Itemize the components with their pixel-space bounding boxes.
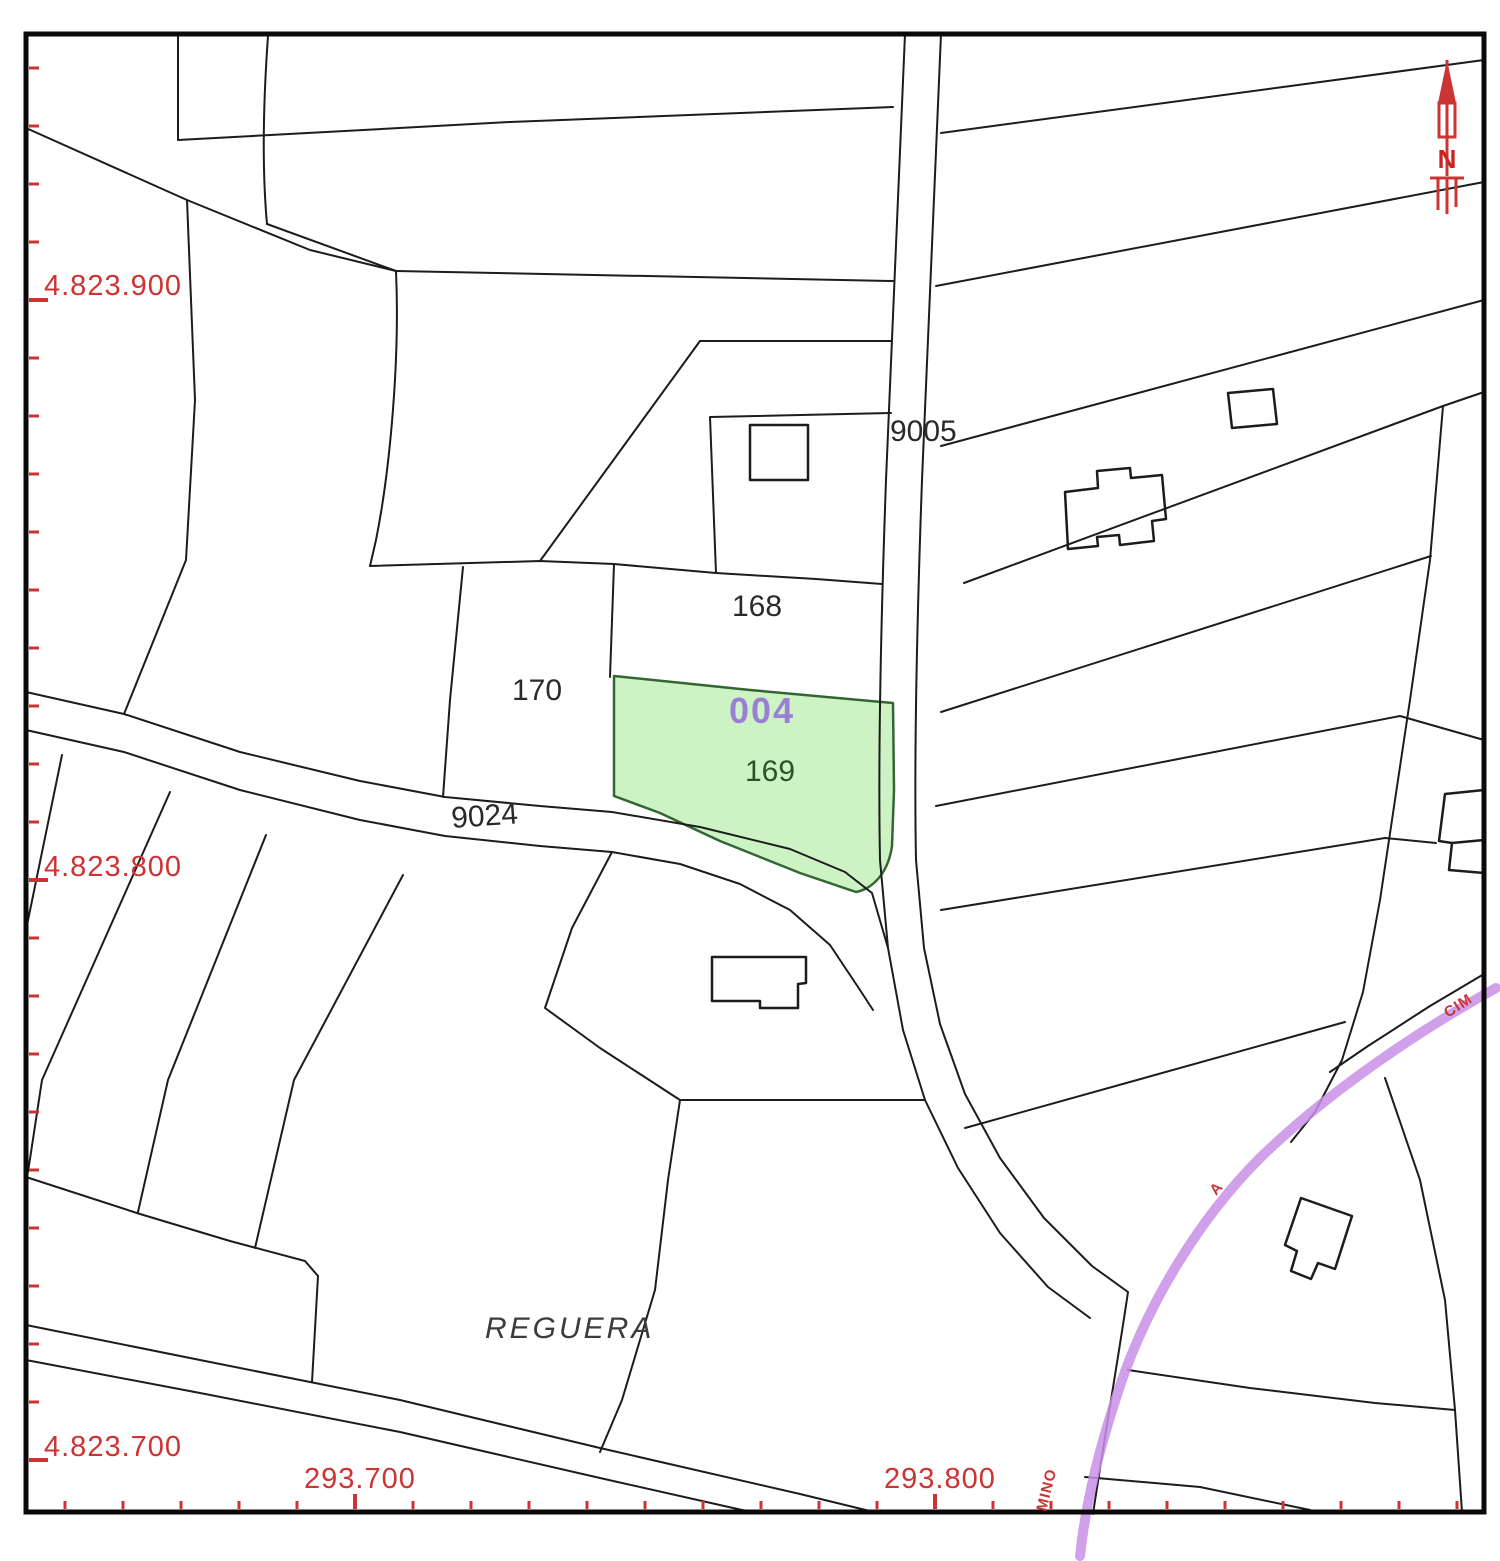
parcel-170-label: 170 [512,674,562,707]
cadastral-map-view: 4.823.900 4.823.800 4.823.700 293.700 29… [0,0,1500,1561]
parcel-168-label: 168 [732,590,782,623]
map-canvas: 4.823.900 4.823.800 4.823.700 293.700 29… [0,0,1500,1561]
y-axis-label: 4.823.800 [44,851,182,883]
x-axis-label: 293.700 [304,1463,416,1495]
selected-parcel-code: 004 [729,690,795,731]
north-letter: N [1438,144,1457,174]
camino-name-upper: CIM [1441,990,1476,1021]
road-9024-label: 9024 [450,797,519,835]
x-axis-label: 293.800 [884,1463,996,1495]
place-name-label: REGUERA [485,1312,654,1345]
y-axis-label: 4.823.900 [44,270,182,302]
camino-name-lower: MINO [1033,1467,1060,1513]
camino-road-highlight [1080,988,1496,1556]
y-axis-label: 4.823.700 [44,1431,182,1463]
road-9005-label: 9005 [890,415,957,448]
parcel-labels: 9005 9024 168 170 004 169 REGUERA [450,415,957,1345]
parcel-169-label: 169 [745,755,795,788]
